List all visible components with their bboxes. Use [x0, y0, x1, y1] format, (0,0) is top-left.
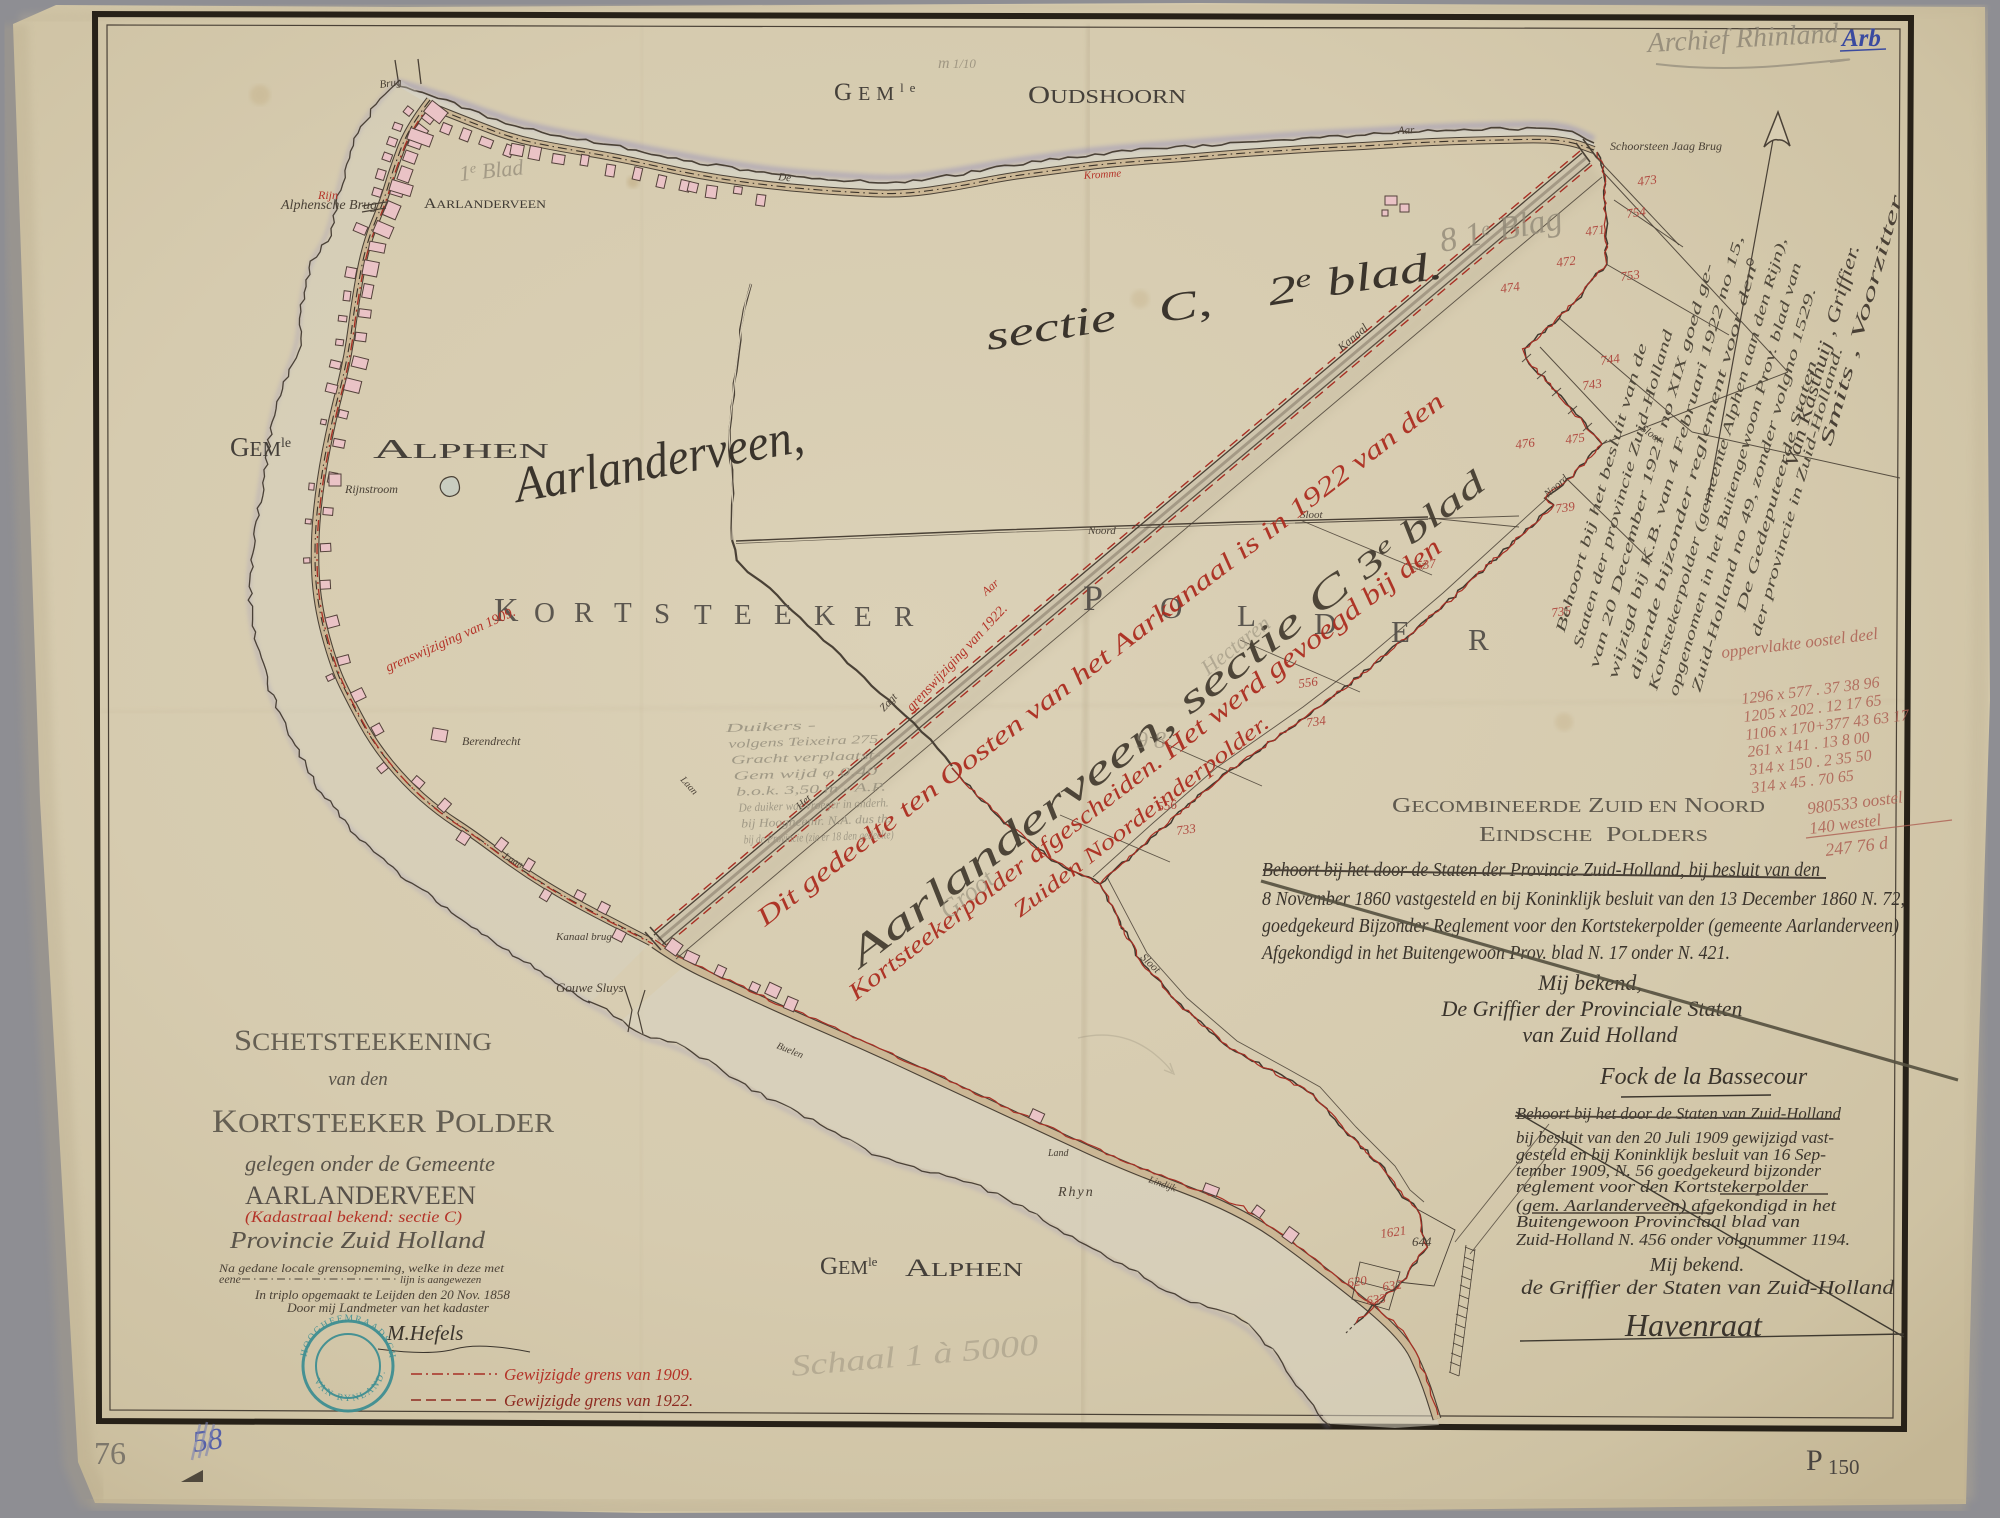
svg-text:Na gedane locale grensopneming: Na gedane locale grensopneming, welke in…: [218, 1261, 505, 1275]
svg-text:E: E: [1391, 614, 1410, 649]
svg-text:Aar: Aar: [1397, 124, 1416, 137]
svg-text:Buitengewoon Provinciaal blad: Buitengewoon Provinciaal blad van: [1516, 1212, 1800, 1231]
svg-text:T: T: [694, 599, 712, 631]
svg-text:Noord: Noord: [1087, 525, 1116, 537]
svg-text:GECOMBINEERDE ZUID EN NOORD: GECOMBINEERDE ZUID EN NOORD: [1392, 793, 1765, 817]
svg-text:OUDSHOORN: OUDSHOORN: [1028, 82, 1186, 109]
svg-text:Rijnstroom: Rijnstroom: [344, 482, 398, 496]
svg-text:E: E: [734, 599, 752, 631]
svg-text:Land: Land: [1047, 1148, 1070, 1159]
svg-text:754: 754: [1625, 203, 1647, 221]
svg-text:743: 743: [1581, 375, 1603, 393]
svg-text:(Kadastraal bekend: sectie C): (Kadastraal bekend: sectie C): [245, 1209, 462, 1226]
svg-text:Gewijzigde grens van 1922.: Gewijzigde grens van 1922.: [504, 1391, 693, 1410]
svg-text:Havenraat: Havenraat: [1624, 1307, 1763, 1343]
svg-text:Rijn: Rijn: [317, 188, 338, 202]
svg-text:gelegen onder de Gemeente: gelegen onder de Gemeente: [245, 1151, 495, 1176]
svg-text:van den: van den: [328, 1069, 388, 1090]
svg-text:Door mij Landmeter van het kad: Door mij Landmeter van het kadaster: [286, 1300, 490, 1315]
svg-text:KORTSTEEKER POLDER: KORTSTEEKER POLDER: [212, 1104, 554, 1140]
svg-text:473: 473: [1636, 171, 1658, 189]
svg-text:Gouwe Sluys: Gouwe Sluys: [556, 980, 624, 995]
svg-text:Gewijzigde grens van 1909.: Gewijzigde grens van 1909.: [504, 1365, 693, 1384]
svg-text:eene: eene: [219, 1272, 242, 1286]
svg-text:Kanaal brug: Kanaal brug: [555, 931, 612, 943]
svg-text:De Griffier der Provinciale St: De Griffier der Provinciale Staten: [1440, 996, 1742, 1021]
svg-text:de Griffier der Staten van Zui: de Griffier der Staten van Zuid-Holland: [1521, 1277, 1895, 1299]
svg-text:O: O: [534, 597, 555, 629]
svg-text:739: 739: [1554, 498, 1576, 516]
svg-text:EINDSCHE POLDERS: EINDSCHE POLDERS: [1479, 822, 1708, 846]
svg-text:472: 472: [1555, 252, 1577, 270]
svg-text:Mij bekend.: Mij bekend.: [1649, 1254, 1744, 1276]
svg-text:SCHETSTEEKENING: SCHETSTEEKENING: [234, 1024, 492, 1057]
svg-text:471: 471: [1584, 221, 1605, 239]
svg-text:556: 556: [1297, 673, 1319, 691]
svg-text:Fock de la Bassecour: Fock de la Bassecour: [1599, 1064, 1808, 1090]
svg-text:Provincie Zuid Holland: Provincie Zuid Holland: [229, 1228, 486, 1254]
svg-text:lijn is aangewezen: lijn is aangewezen: [400, 1274, 482, 1286]
svg-text:ALPHEN: ALPHEN: [905, 1255, 1023, 1282]
svg-text:K: K: [814, 600, 835, 632]
svg-text:Schoorsteen Jaag Brug: Schoorsteen Jaag Brug: [1610, 139, 1722, 153]
svg-text:De: De: [777, 171, 792, 184]
svg-text:Berendrecht: Berendrecht: [462, 734, 521, 748]
svg-text:Zuid-Holland N. 456 onder volg: Zuid-Holland N. 456 onder volgnummer 119…: [1516, 1230, 1850, 1249]
svg-text:M.Hefels: M.Hefels: [386, 1321, 463, 1345]
svg-text:van Zuid Holland: van Zuid Holland: [1522, 1022, 1678, 1047]
svg-text:744: 744: [1599, 350, 1621, 368]
svg-text:476: 476: [1514, 434, 1536, 452]
svg-text:R: R: [1468, 622, 1489, 657]
svg-text:R: R: [894, 601, 914, 633]
svg-text:733: 733: [1175, 820, 1197, 838]
svg-text:P: P: [1083, 578, 1103, 618]
svg-text:644: 644: [1412, 1234, 1432, 1249]
svg-text:Afgekondigd in het Buitengewoo: Afgekondigd in het Buitengewoon Prov. bl…: [1260, 942, 1730, 964]
svg-text:goedgekeurd Bijzonder Reglemen: goedgekeurd Bijzonder Reglement voor den…: [1262, 915, 1899, 937]
svg-text:T: T: [614, 597, 632, 629]
svg-text:R: R: [574, 597, 594, 629]
svg-text:9 8: 9 8: [1136, 728, 1166, 754]
svg-text:Rhyn: Rhyn: [1057, 1185, 1095, 1200]
svg-text:S: S: [654, 598, 670, 630]
svg-text:m 1/10: m 1/10: [938, 55, 976, 72]
svg-text:E: E: [854, 601, 872, 633]
svg-text:AARLANDERVEEN: AARLANDERVEEN: [424, 196, 546, 212]
svg-text:734: 734: [1305, 712, 1327, 730]
svg-text:633: 633: [1365, 1290, 1387, 1308]
svg-text:620: 620: [1346, 1272, 1368, 1290]
svg-text:reglement voor den Kortstekerp: reglement voor den Kortstekerpolder: [1516, 1177, 1808, 1196]
svg-text:474: 474: [1499, 278, 1521, 296]
svg-text:Arb: Arb: [1840, 25, 1881, 52]
svg-text:475: 475: [1564, 429, 1586, 447]
svg-text:E: E: [774, 599, 792, 631]
svg-text:8 November 1860 vastgesteld en: 8 November 1860 vastgesteld en bij Konin…: [1262, 888, 1905, 910]
svg-text:AARLANDERVEEN: AARLANDERVEEN: [245, 1181, 476, 1210]
svg-text:76: 76: [94, 1435, 126, 1471]
svg-text:753: 753: [1619, 266, 1641, 284]
svg-text:Behoort bij het door de Staten: Behoort bij het door de Staten van Zuid-…: [1516, 1104, 1841, 1123]
